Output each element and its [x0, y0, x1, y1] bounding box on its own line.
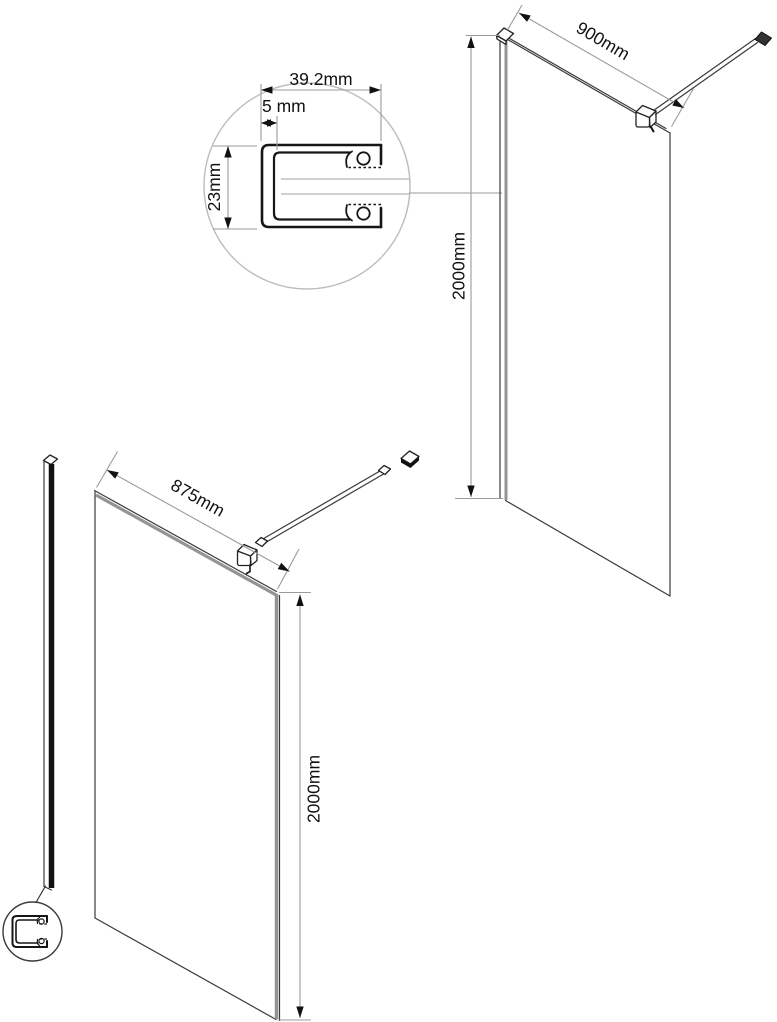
shower-panel-diagram: 39.2mm 5 mm 23mm: [0, 0, 777, 1022]
extension-line: [278, 549, 300, 589]
dimension-line: [107, 470, 290, 572]
profile-inner-outline: [274, 153, 350, 220]
support-bar-bracket: [636, 106, 656, 132]
glass-top-edge-face: [96, 495, 277, 596]
dimension-label: 2000mm: [304, 755, 324, 823]
profile-bottom-hook: [357, 207, 369, 219]
glass-bottom-edge: [506, 501, 671, 597]
dimension-875mm: 875mm: [97, 452, 300, 590]
support-bar-line-bottom: [656, 43, 758, 115]
dimension-23mm: 23mm: [204, 146, 257, 229]
glass-top-edge-outer: [95, 491, 277, 592]
extension-line: [97, 452, 118, 488]
strip-top-cap: [44, 455, 58, 465]
glass-panel-left: 875mm 2000mm: [95, 451, 420, 1021]
callout-circle-large: [204, 83, 410, 289]
glass-bottom-edge: [95, 918, 276, 1020]
mini-profile-inner: [16, 920, 38, 943]
dimension-label: 900mm: [573, 17, 633, 64]
arrowhead: [267, 119, 277, 126]
support-bar: [654, 32, 772, 115]
support-bar-near-cap: [256, 538, 268, 547]
dimension-label: 875mm: [168, 475, 229, 521]
glass-panel-right: 900mm 2000mm: [449, 5, 772, 596]
profile-bottom-hook-tail: [346, 205, 352, 221]
extension-line: [508, 5, 523, 30]
dimension-label: 39.2mm: [289, 69, 352, 89]
dimension-900mm: 900mm: [508, 5, 694, 127]
wall-profile-strip: [37, 455, 58, 902]
wall-profile-section: [262, 145, 381, 227]
dimension-2000mm-left: 2000mm: [278, 593, 324, 1021]
dimension-2000mm-right: 2000mm: [449, 36, 503, 499]
profile-top-hook: [357, 152, 369, 164]
support-bar-line-bottom: [261, 474, 385, 546]
dimension-label: 23mm: [204, 163, 224, 212]
mini-profile-top-hook: [39, 919, 44, 924]
support-bar-bracket: [238, 545, 258, 574]
support-bar-far-cap: [379, 466, 391, 475]
technical-drawing-page: 39.2mm 5 mm 23mm: [0, 0, 777, 1022]
profile-top-hook-tail: [346, 152, 352, 168]
dimension-label: 5 mm: [262, 96, 306, 116]
bracket-pin: [651, 127, 654, 132]
profile-outer-outline: [262, 145, 381, 227]
dimension-label: 2000mm: [449, 232, 469, 300]
bracket-pin: [247, 566, 251, 574]
support-bar-line-top: [259, 470, 383, 542]
dimension-5mm: 5 mm: [261, 96, 306, 150]
support-bar-exploded: [256, 451, 420, 547]
detail-callout-small: [3, 902, 62, 961]
support-bar-wall-cap: [755, 32, 772, 46]
callout-leader-line: [37, 886, 46, 902]
